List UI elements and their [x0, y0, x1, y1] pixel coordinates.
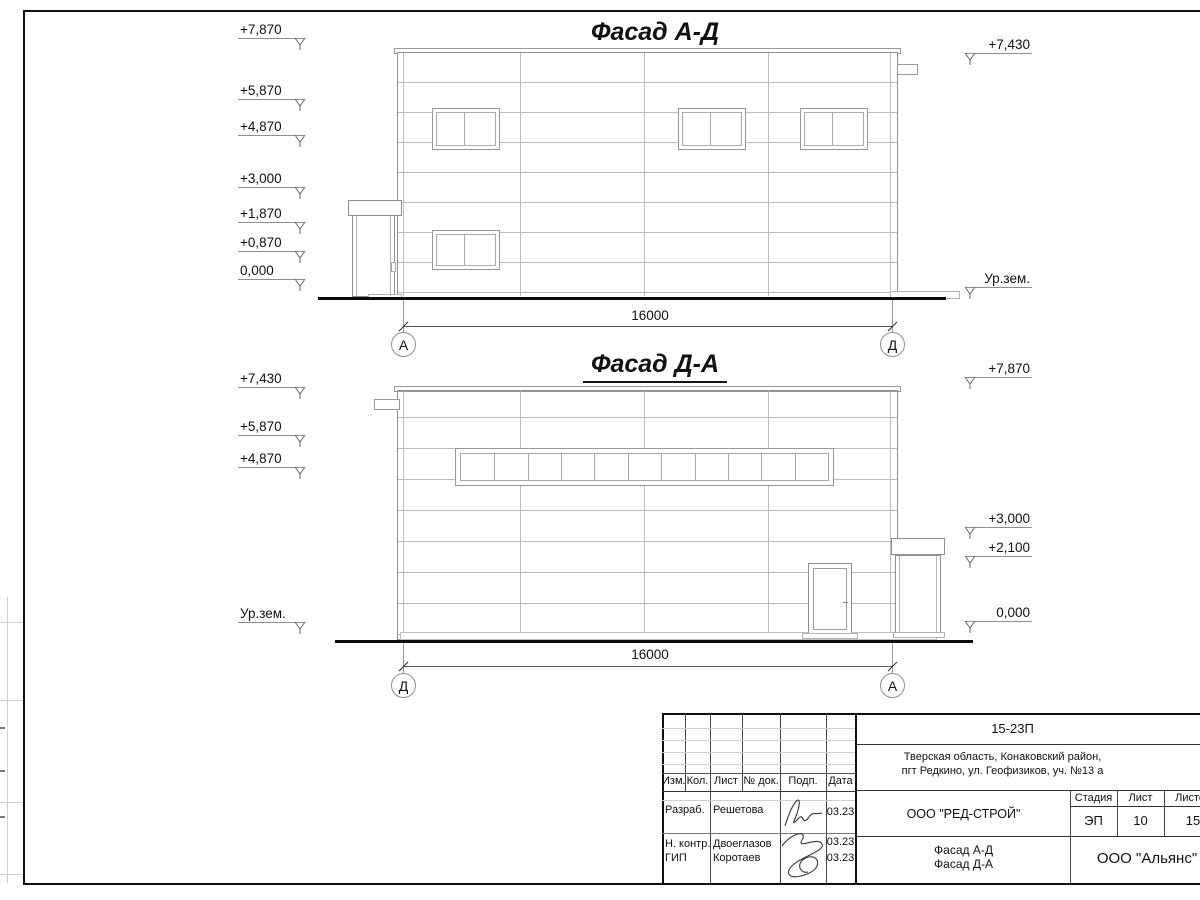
elevation-mark: +1,870 — [238, 205, 304, 223]
tb-name: Двоеглазов — [713, 838, 771, 850]
facade2-dimension-value: 16000 — [550, 647, 750, 662]
facade2-panel-joint — [644, 391, 645, 638]
tb-sheet-header: Лист — [1117, 792, 1164, 804]
elevation-arrow-icon — [293, 221, 307, 235]
facade2-ground-line — [335, 640, 973, 643]
adjacent-sheet-dash — [0, 816, 5, 818]
tb-row-line — [662, 764, 855, 765]
adjacent-sheet-line — [0, 622, 23, 623]
elevation-value: +5,870 — [240, 83, 282, 98]
tb-name: Решетова — [713, 804, 763, 816]
window-frame — [682, 112, 742, 146]
elevation-mark: +3,000 — [238, 170, 304, 188]
adjacent-sheet-line — [0, 802, 23, 803]
tb-row-line — [662, 800, 855, 801]
elevation-value: +3,000 — [988, 511, 1030, 526]
facade2-ribbon-window — [455, 448, 834, 486]
tb-date: 03.23 — [826, 852, 855, 864]
tb-sheets-header: Листов — [1164, 792, 1200, 804]
elevation-mark: +7,430 — [238, 370, 304, 388]
facade2-porch-roof — [891, 538, 945, 555]
elevation-value: +7,870 — [240, 22, 282, 37]
facade1-axis-bubble-right: Д — [880, 332, 905, 357]
tb-role: Разраб. — [665, 804, 705, 816]
porch-trim — [356, 216, 391, 296]
facade2-axis-bubble-right: А — [880, 673, 905, 698]
elevation-arrow-icon — [293, 186, 307, 200]
tb-doc-title-line1: Фасад А-Д — [857, 843, 1070, 857]
facade2-axis-bubble-left: Д — [391, 673, 416, 698]
elevation-arrow-icon — [293, 37, 307, 51]
window-frame — [436, 112, 496, 146]
frame-bottom — [23, 883, 1200, 885]
facade1-porch-roof — [348, 200, 402, 216]
ribbon-mullion — [494, 454, 495, 480]
elevation-mark: +4,870 — [238, 450, 304, 468]
frame-top — [23, 10, 1200, 12]
door-leaf — [813, 568, 847, 630]
tb-role: Н. контр. — [665, 838, 710, 850]
axis-letter: А — [888, 678, 897, 694]
tb-row-line — [857, 836, 1200, 837]
signature-scribble — [776, 828, 826, 880]
porch-trim — [899, 556, 937, 633]
elevation-value: +2,100 — [988, 540, 1030, 555]
tb-header-ndok: № док. — [742, 775, 780, 787]
elevation-arrow-icon — [293, 434, 307, 448]
facade1-window-upper-3 — [800, 108, 868, 150]
facade1-panel-joint — [768, 53, 769, 296]
tb-sheet-number: 10 — [1117, 813, 1164, 828]
elevation-mark: +2,100 — [966, 539, 1032, 557]
window-frame — [436, 234, 496, 266]
tb-header-izm: Изм. — [662, 775, 685, 787]
tb-row-line — [857, 744, 1200, 745]
facade2-roof-scupper — [374, 399, 400, 410]
tb-doc-title-line2: Фасад Д-А — [857, 857, 1070, 871]
elevation-value: +7,430 — [240, 371, 282, 386]
facade2-corner-trim — [890, 391, 891, 638]
elevation-arrow-icon — [293, 621, 307, 635]
elevation-arrow-icon — [963, 286, 977, 300]
facade1-title: Фасад А-Д — [545, 18, 765, 51]
axis-letter: Д — [888, 337, 897, 353]
drawing-sheet: Фасад А-Д 16000 А Д + — [0, 0, 1200, 900]
porch-handle — [391, 262, 396, 272]
elevation-mark: +7,870 — [966, 360, 1032, 378]
tb-header-kol: Кол. — [685, 775, 710, 787]
ribbon-mullion — [528, 454, 529, 480]
elevation-value: +0,870 — [240, 235, 282, 250]
facade1-corner-trim — [890, 53, 891, 296]
tb-row-line — [1070, 806, 1200, 807]
elevation-mark-ground-level: Ур.зем. — [966, 270, 1032, 288]
facade2-porch-step — [893, 632, 945, 638]
tb-header-list: Лист — [710, 775, 742, 787]
elevation-mark: +4,870 — [238, 118, 304, 136]
elevation-value: +7,870 — [988, 361, 1030, 376]
adjacent-sheet-dash — [0, 727, 5, 729]
facade1-porch-wall — [352, 215, 395, 297]
window-mullion — [710, 112, 711, 146]
tb-row-line — [662, 728, 855, 729]
facade1-axis-extension — [892, 300, 893, 333]
window-mullion — [832, 112, 833, 146]
tb-date: 03.23 — [826, 836, 855, 848]
window-frame — [804, 112, 864, 146]
tb-sheets-total: 15 — [1164, 813, 1200, 828]
elevation-mark: +3,000 — [966, 510, 1032, 528]
tb-designer-company: ООО "РЕД-СТРОЙ" — [857, 807, 1070, 821]
elevation-mark: 0,000 — [966, 604, 1032, 622]
elevation-mark: +5,870 — [238, 82, 304, 100]
facade1-dimension-value: 16000 — [550, 308, 750, 323]
elevation-arrow-icon — [963, 620, 977, 634]
axis-letter: А — [399, 337, 408, 353]
facade1-roof-scupper — [897, 64, 918, 75]
tb-stage-header: Стадия — [1070, 792, 1117, 804]
signature-scribble — [781, 792, 825, 832]
elevation-arrow-icon — [293, 386, 307, 400]
ribbon-mullion — [761, 454, 762, 480]
elevation-value: +3,000 — [240, 171, 282, 186]
tb-address-line1: Тверская область, Конаковский район, — [845, 751, 1160, 763]
elevation-mark-ground-level: Ур.зем. — [238, 605, 304, 623]
ribbon-mullion — [795, 454, 796, 480]
tb-row-line — [662, 833, 855, 834]
elevation-arrow-icon — [963, 526, 977, 540]
tb-row-line — [662, 773, 855, 774]
facade1-axis-extension — [403, 300, 404, 333]
tb-address-line2: пгт Редкино, ул. Геофизиков, уч. №13 а — [845, 765, 1160, 777]
facade2-panel-joint — [520, 391, 521, 638]
adjacent-sheet-line — [0, 874, 23, 875]
tb-row-line — [662, 740, 855, 741]
facade1-ground-line — [318, 297, 946, 300]
elevation-arrow-icon — [963, 376, 977, 390]
facade1-panel-joint — [644, 53, 645, 296]
tb-name: Коротаев — [713, 852, 761, 864]
ribbon-mullion — [628, 454, 629, 480]
ribbon-mullion — [561, 454, 562, 480]
elevation-arrow-icon — [963, 52, 977, 66]
tb-header-podp: Подп. — [780, 775, 826, 787]
facade2-title: Фасад Д-А — [545, 350, 765, 383]
frame-left — [23, 10, 25, 885]
elevation-value: Ур.зем. — [984, 271, 1030, 286]
elevation-mark: +0,870 — [238, 234, 304, 252]
facade1-dimension-line — [403, 326, 892, 327]
tb-org-name: ООО "Альянс" — [1072, 850, 1200, 867]
tb-row-line — [662, 752, 855, 753]
ribbon-mullion — [661, 454, 662, 480]
tb-col-line — [710, 713, 711, 883]
tb-role: ГИП — [665, 852, 687, 864]
elevation-arrow-icon — [963, 555, 977, 569]
facade2-panel-joint — [768, 391, 769, 638]
axis-letter: Д — [399, 678, 408, 694]
elevation-mark: +7,430 — [966, 36, 1032, 54]
facade2-dimension-line — [403, 666, 892, 667]
tb-date: 03.23 — [826, 806, 855, 818]
window-mullion — [464, 112, 465, 146]
facade2-door-step — [802, 633, 858, 639]
elevation-value: +7,430 — [988, 37, 1030, 52]
facade2-corner-trim — [403, 391, 404, 638]
facade1-window-upper-1 — [432, 108, 500, 150]
tb-stage-value: ЭП — [1070, 813, 1117, 828]
elevation-arrow-icon — [293, 98, 307, 112]
elevation-value: +1,870 — [240, 206, 282, 221]
facade2-axis-extension — [892, 643, 893, 676]
titleblock-left — [662, 713, 664, 883]
elevation-value: +4,870 — [240, 119, 282, 134]
ribbon-mullion — [728, 454, 729, 480]
tb-row-line — [857, 790, 1200, 791]
facade1-title-text: Фасад А-Д — [583, 18, 727, 51]
adjacent-sheet-dash — [0, 770, 5, 772]
elevation-mark: +7,870 — [238, 21, 304, 39]
door-handle — [843, 602, 848, 603]
elevation-arrow-icon — [293, 466, 307, 480]
facade1-axis-bubble-left: А — [391, 332, 416, 357]
ribbon-mullion — [695, 454, 696, 480]
facade2-axis-extension — [403, 643, 404, 676]
elevation-value: 0,000 — [240, 263, 274, 278]
facade1-window-upper-2 — [678, 108, 746, 150]
tb-project-code: 15-23П — [855, 721, 1170, 736]
elevation-mark: 0,000 — [238, 262, 304, 280]
facade2-door — [808, 563, 852, 635]
elevation-value: +5,870 — [240, 419, 282, 434]
facade1-corner-trim — [403, 53, 404, 296]
ribbon-mullion — [594, 454, 595, 480]
ribbon-window-inner — [460, 453, 829, 481]
elevation-value: 0,000 — [996, 605, 1030, 620]
facade1-panel-joint — [520, 53, 521, 296]
adjacent-sheet-line — [7, 597, 8, 883]
elevation-value: +4,870 — [240, 451, 282, 466]
elevation-arrow-icon — [293, 278, 307, 292]
facade1-window-lower — [432, 230, 500, 270]
adjacent-sheet-line — [0, 700, 23, 701]
facade2-title-text: Фасад Д-А — [583, 350, 727, 383]
tb-row-line — [662, 791, 855, 792]
elevation-value: Ур.зем. — [240, 606, 286, 621]
elevation-arrow-icon — [293, 134, 307, 148]
window-mullion — [464, 234, 465, 266]
facade2-porch-wall — [895, 555, 941, 634]
elevation-mark: +5,870 — [238, 418, 304, 436]
